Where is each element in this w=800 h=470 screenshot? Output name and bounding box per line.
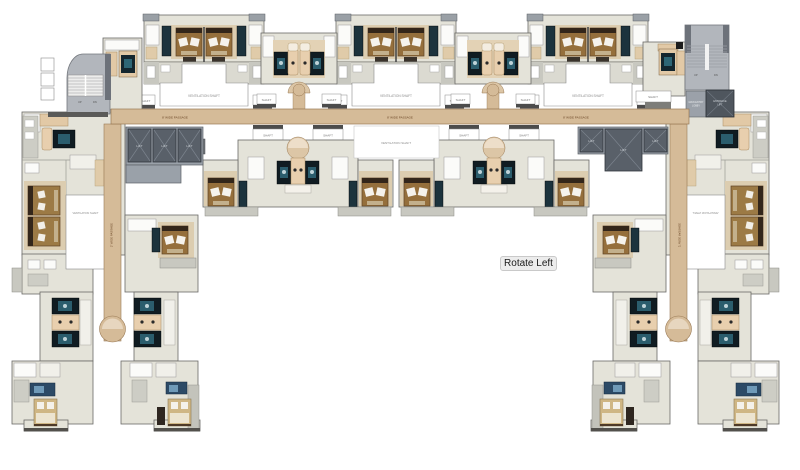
- svg-text:DN: DN: [714, 73, 718, 77]
- svg-text:8' WIDE PASSAGE: 8' WIDE PASSAGE: [162, 116, 188, 120]
- svg-text:LIFT: LIFT: [652, 139, 658, 143]
- svg-text:DN: DN: [93, 100, 97, 104]
- svg-text:SHAFT: SHAFT: [648, 95, 658, 99]
- svg-text:8' WIDE PASSAGE: 8' WIDE PASSAGE: [387, 116, 413, 120]
- svg-text:LIFT: LIFT: [588, 139, 594, 143]
- svg-text:LIFT: LIFT: [620, 148, 626, 152]
- svg-text:UP: UP: [78, 100, 82, 104]
- svg-text:LIFT: LIFT: [718, 104, 723, 107]
- svg-text:VENTILATION SHAFT: VENTILATION SHAFT: [381, 141, 411, 145]
- svg-text:LOBBY: LOBBY: [692, 105, 700, 108]
- svg-text:8' WIDE PASSAGE: 8' WIDE PASSAGE: [563, 116, 589, 120]
- svg-text:UP: UP: [694, 73, 698, 77]
